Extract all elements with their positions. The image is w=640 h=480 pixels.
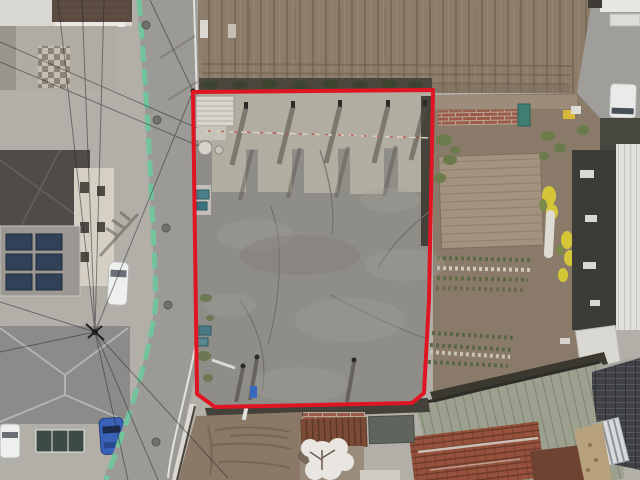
brown-roof — [52, 0, 132, 22]
field-object — [200, 20, 208, 38]
white-roof-structure — [600, 0, 640, 12]
solar-panel-building — [0, 226, 80, 296]
smoothed-plot — [438, 153, 543, 249]
white-building-siding — [616, 144, 640, 330]
white-car-roadside — [107, 262, 129, 306]
aerial-photo-canvas — [0, 0, 640, 480]
gray-green-roof — [369, 415, 415, 444]
storage-tank — [198, 141, 212, 155]
carport-roof — [36, 430, 84, 452]
field-object — [228, 24, 236, 38]
teal-structure — [518, 104, 530, 126]
white-car-bottom — [0, 424, 20, 458]
aerial-photo — [0, 0, 640, 480]
dirt-lot — [178, 412, 302, 480]
blue-bucket — [250, 386, 257, 398]
white-van — [609, 84, 636, 119]
brick-path — [438, 109, 518, 125]
white-roof-structure — [610, 14, 640, 26]
target-parcel — [193, 90, 445, 407]
hip-roof-house — [0, 326, 130, 424]
